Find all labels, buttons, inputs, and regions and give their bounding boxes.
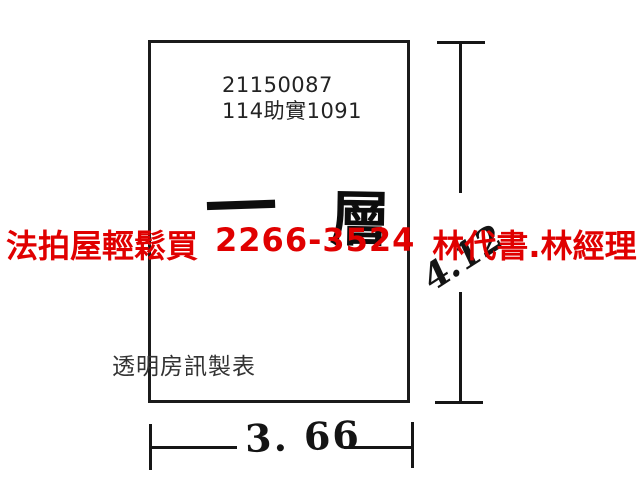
case-number-line: 21150087 xyxy=(222,72,362,98)
width-dimension-left-line xyxy=(151,446,237,449)
height-dimension-lower-line xyxy=(459,292,462,404)
watermark-contact-names: 林代書.林經理 xyxy=(432,221,636,267)
height-dimension-upper-line xyxy=(459,41,462,193)
floorplan-scan: 21150087 114助實1091 一 層 透明房訊製表 4.12 3. 66… xyxy=(0,0,640,480)
maker-credit-label: 透明房訊製表 xyxy=(112,347,256,381)
watermark-company-name: 法拍屋輕鬆買 xyxy=(6,221,198,267)
docket-number-line: 114助實1091 xyxy=(222,98,362,124)
width-dimension-right-tick xyxy=(411,422,414,468)
case-numbers: 21150087 114助實1091 xyxy=(222,72,362,124)
watermark-phone-number: 2266-3524 xyxy=(215,221,415,259)
advert-watermark: 法拍屋輕鬆買 2266-3524 林代書.林經理 xyxy=(6,221,640,267)
height-dimension-bottom-tick xyxy=(435,401,483,404)
width-dimension-value: 3. 66 xyxy=(244,416,361,458)
